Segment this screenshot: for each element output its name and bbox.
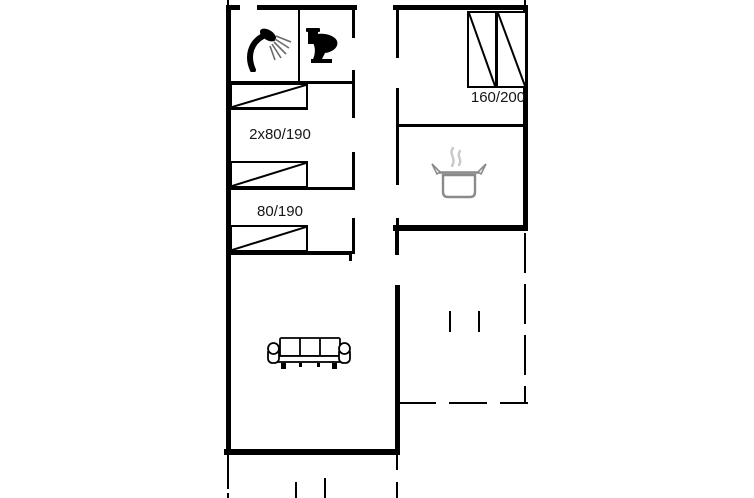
wall-kitchen-top — [397, 124, 523, 127]
toilet-base — [311, 59, 332, 63]
wall-living-bottom — [224, 449, 400, 455]
wall-hall-left-4 — [352, 218, 355, 254]
wall-hall-left-2 — [352, 70, 355, 118]
terrace-dashed-bottom — [398, 402, 528, 404]
wall-hall-right-2 — [396, 88, 399, 185]
double-bed-icon — [467, 11, 497, 88]
wall-living-right-stub — [395, 231, 399, 255]
sofa-arm-roll-right — [339, 343, 350, 354]
bed-size-label: 80/190 — [240, 204, 320, 221]
terrace-dashed-right — [524, 233, 526, 403]
lower-line-1b — [227, 493, 229, 498]
terrace-tick-1 — [449, 311, 451, 332]
shower-icon — [246, 26, 294, 72]
room-hallway — [352, 8, 397, 254]
sofa-seat — [278, 356, 342, 362]
toilet-tank-lid — [306, 28, 320, 32]
wall-hall-right-3 — [396, 218, 399, 228]
sofa-feet — [281, 363, 337, 369]
toilet-bowl — [313, 34, 337, 59]
wall-exterior-top-a — [257, 5, 357, 10]
bed-size-label: 2x80/190 — [238, 127, 322, 144]
double-bed-icon — [496, 11, 527, 88]
lower-line-2 — [295, 482, 297, 498]
wall-bedroom2-bottom-stub — [349, 251, 352, 261]
single-bed-icon — [230, 225, 308, 252]
wall-extension-top-left — [227, 0, 229, 5]
lower-line-1 — [227, 455, 229, 489]
bed-size-label: 160/200 — [460, 90, 536, 107]
shower-hose — [250, 36, 263, 70]
wall-living-right — [395, 285, 400, 455]
wall-hall-left-3 — [352, 152, 355, 190]
sofa-icon — [266, 336, 352, 376]
single-bed-icon — [230, 83, 308, 110]
sofa-arm-roll-left — [268, 343, 279, 354]
pot-handle-left — [432, 164, 440, 174]
pot-body — [443, 175, 475, 197]
wall-exterior-top-b — [393, 5, 528, 10]
steam — [451, 148, 460, 166]
wall-kitchen-bottom — [393, 225, 528, 231]
terrace-tick-2 — [478, 311, 480, 332]
lower-line-5 — [396, 482, 398, 498]
wall-extension-top-right — [524, 0, 526, 5]
wall-top-nub — [231, 5, 240, 10]
pot — [432, 164, 486, 197]
cooking-pot-icon — [430, 145, 488, 203]
single-bed-icon — [230, 161, 308, 188]
lower-line-3 — [324, 478, 326, 498]
floor-plan: 2x80/190 80/190 160/200 — [0, 0, 754, 498]
toilet-icon — [305, 28, 342, 66]
wall-hall-left-1 — [352, 10, 355, 38]
wall-hall-right-1 — [396, 10, 399, 58]
lower-line-4 — [396, 455, 398, 470]
room-terrace — [400, 231, 524, 402]
wall-bathroom-divider — [298, 10, 300, 82]
pot-handle-right — [478, 164, 486, 174]
sofa-back — [280, 338, 340, 356]
